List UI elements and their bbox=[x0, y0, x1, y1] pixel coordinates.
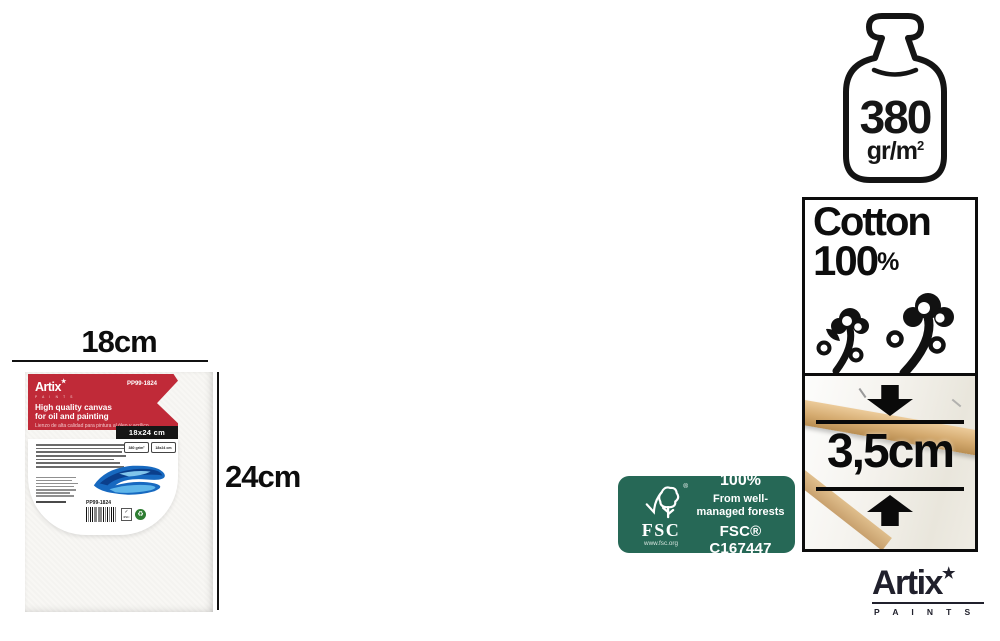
fsc-percent: 100% bbox=[720, 473, 761, 489]
material-info-box: Cotton 100% bbox=[802, 197, 978, 552]
fsc-acronym: FSC bbox=[642, 521, 681, 539]
canvas-product-photo: Artix★ PP99-1824 P A I N T S High qualit… bbox=[25, 372, 213, 612]
weight-badge: 380 gr/m2 bbox=[836, 8, 954, 188]
brand-star-icon: ★ bbox=[61, 379, 66, 385]
fsc-url: www.fsc.org bbox=[644, 540, 678, 547]
height-dimension-line bbox=[217, 372, 219, 610]
label-sku: PP99-1824 bbox=[127, 381, 157, 387]
barcode-sku: PP99-1824 bbox=[86, 500, 111, 506]
width-dimension-label: 18cm bbox=[25, 324, 213, 360]
depth-bottom-line bbox=[816, 487, 964, 491]
fsc-mini-icon: ✓ FSC bbox=[121, 508, 132, 521]
weight-value: 380 bbox=[836, 94, 954, 140]
staple-mark bbox=[952, 399, 962, 408]
footer-brand-logo: Artix★ P A I N T S bbox=[872, 566, 986, 617]
label-ean-placeholder bbox=[36, 501, 66, 503]
label-brand-logo: Artix★ bbox=[35, 379, 66, 394]
brand-wordmark: Artix★ bbox=[872, 566, 986, 600]
cotton-word: Cotton bbox=[813, 202, 969, 242]
cotton-percentage: 100% bbox=[813, 242, 969, 280]
fsc-claim-block: 100% From well- managed forests FSC® C16… bbox=[694, 483, 787, 547]
fsc-license-code: FSC® C167447 bbox=[694, 523, 787, 557]
product-label: Artix★ PP99-1824 P A I N T S High qualit… bbox=[28, 374, 178, 430]
height-dimension-label: 24cm bbox=[225, 459, 300, 495]
cotton-plant-icon bbox=[807, 281, 973, 373]
label-weight-mini-badge: 380 gr/m² bbox=[124, 442, 149, 453]
label-header: Artix★ PP99-1824 P A I N T S High qualit… bbox=[28, 374, 178, 430]
recycle-icon: ♻ bbox=[135, 509, 146, 520]
label-size-mini-badge: 18x24 cm bbox=[151, 442, 176, 453]
fsc-logo-block: ® FSC www.fsc.org bbox=[628, 483, 694, 547]
blue-paint-stroke-illustration bbox=[86, 456, 174, 501]
cotton-panel: Cotton 100% bbox=[805, 200, 975, 376]
fsc-claim: From well- managed forests bbox=[696, 493, 784, 518]
label-title: High quality canvas for oil and painting bbox=[35, 403, 171, 421]
weight-unit: gr/m2 bbox=[836, 139, 954, 164]
staple-mark bbox=[859, 388, 867, 398]
fsc-tree-icon bbox=[639, 483, 683, 520]
depth-panel: 3,5cm bbox=[805, 376, 975, 549]
label-address-placeholder bbox=[36, 477, 78, 499]
fsc-certification-badge: ® FSC www.fsc.org 100% From well- manage… bbox=[618, 476, 795, 553]
arrow-up-icon bbox=[867, 495, 913, 526]
product-infographic: 18cm 24cm Artix★ PP99-1824 P A I N T S H… bbox=[0, 0, 1000, 641]
barcode bbox=[86, 507, 116, 522]
label-body: 380 gr/m² 18x24 cm PP99-1824 bbox=[28, 439, 178, 535]
depth-value: 3,5cm bbox=[805, 423, 975, 481]
label-brand-sub: P A I N T S bbox=[35, 395, 171, 399]
width-dimension-line bbox=[12, 360, 208, 362]
label-size-bar: 18x24 cm bbox=[116, 426, 178, 439]
fsc-registered-mark: ® bbox=[683, 483, 688, 490]
brand-star-icon: ★ bbox=[942, 565, 955, 582]
brand-rule bbox=[872, 602, 984, 604]
brand-sub-wordmark: P A I N T S bbox=[872, 607, 986, 617]
